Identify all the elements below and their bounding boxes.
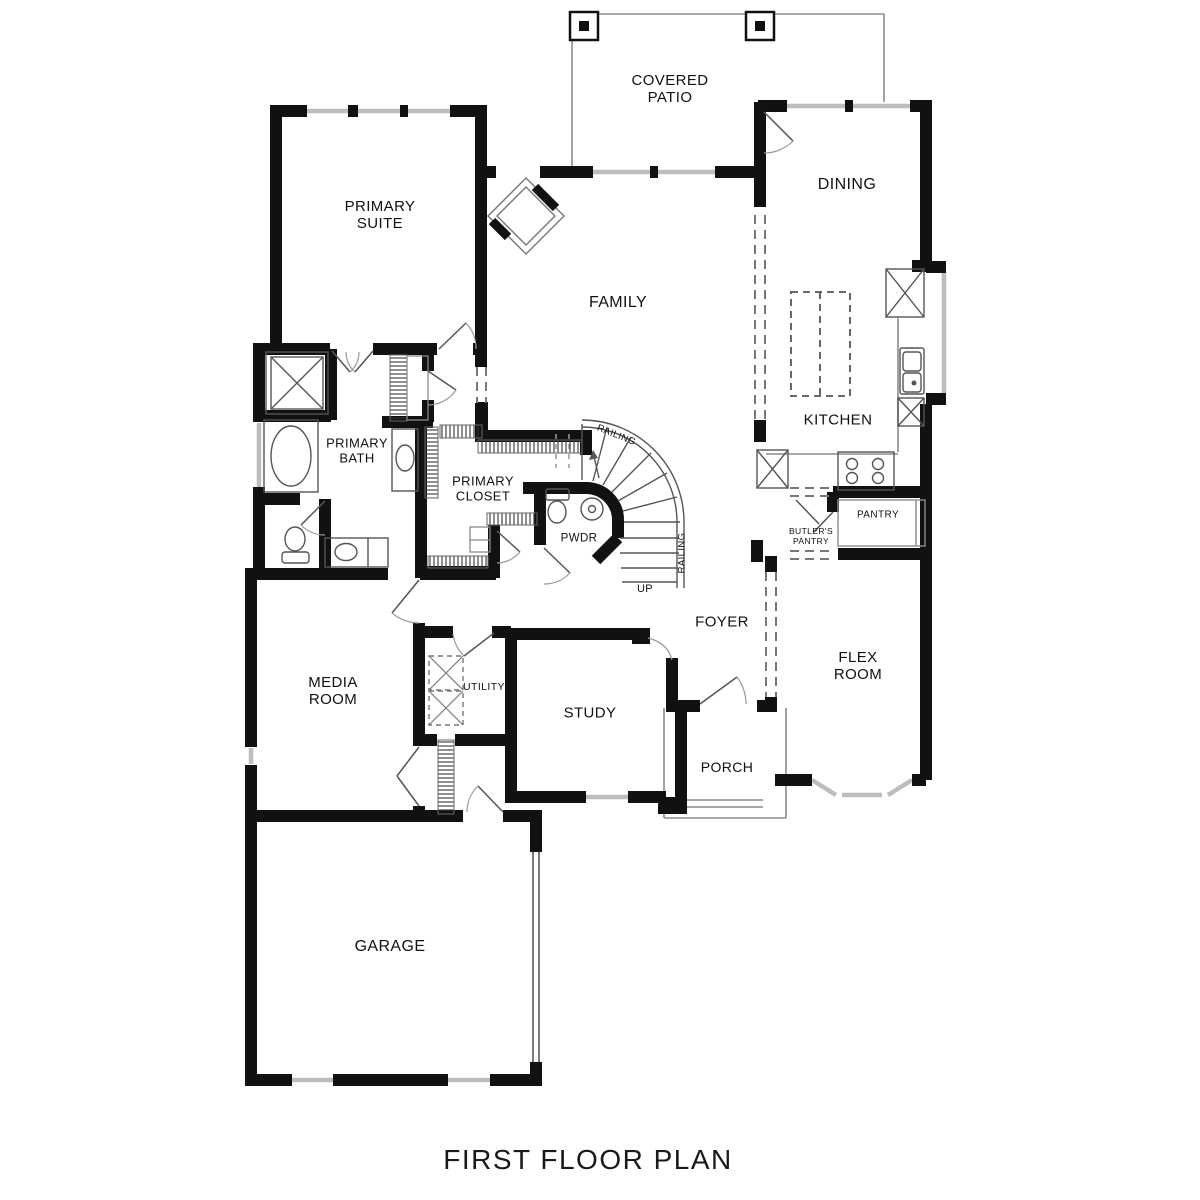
fireplace <box>488 178 564 254</box>
room-label-pantry: PANTRY <box>857 509 899 520</box>
room-label-flex-room: FLEX ROOM <box>834 650 882 684</box>
room-label-porch: PORCH <box>701 760 754 776</box>
patio-outline <box>572 14 884 168</box>
room-label-utility: UTILITY <box>463 682 505 694</box>
room-label-butlers-pantry: BUTLER'S PANTRY <box>789 527 833 547</box>
room-label-study: STUDY <box>564 706 617 723</box>
shower <box>266 352 328 414</box>
garage-side-wall-lines <box>533 852 539 1062</box>
door-swing-arcs <box>301 141 793 812</box>
windows <box>251 106 944 1080</box>
room-label-up: UP <box>637 583 653 595</box>
kitchen-sink <box>900 348 924 394</box>
cabinet-boxes <box>757 269 924 488</box>
room-label-primary-suite: PRIMARY SUITE <box>345 199 416 233</box>
kitchen-island <box>791 292 850 396</box>
patio-columns <box>570 12 774 40</box>
plan-title: FIRST FLOOR PLAN <box>443 1144 733 1176</box>
floor-plan-drawing <box>0 0 1200 1200</box>
bathtub <box>264 420 318 492</box>
kitchen-counters <box>766 318 898 454</box>
room-label-garage: GARAGE <box>355 938 426 956</box>
washer-dryer <box>429 656 463 725</box>
walls <box>245 102 946 1086</box>
room-label-foyer: FOYER <box>695 615 749 632</box>
toilet-wc <box>282 527 309 563</box>
room-label-covered-patio: COVERED PATIO <box>632 73 709 107</box>
pantry-shelves <box>838 500 925 546</box>
room-label-dining: DINING <box>818 176 876 194</box>
cooktop <box>838 452 894 490</box>
room-label-media-room: MEDIA ROOM <box>308 675 358 709</box>
cased-openings <box>477 215 833 697</box>
room-label-family: FAMILY <box>589 294 647 312</box>
room-label-kitchen: KITCHEN <box>804 413 873 430</box>
room-label-primary-bath: PRIMARY BATH <box>326 436 388 465</box>
room-label-pwdr: PWDR <box>561 533 598 546</box>
room-label-primary-closet: PRIMARY CLOSET <box>452 474 514 503</box>
floor-plan-page: COVERED PATIO PRIMARY SUITE DINING FAMIL… <box>0 0 1200 1200</box>
room-label-railing-side: RAILING <box>678 533 689 574</box>
